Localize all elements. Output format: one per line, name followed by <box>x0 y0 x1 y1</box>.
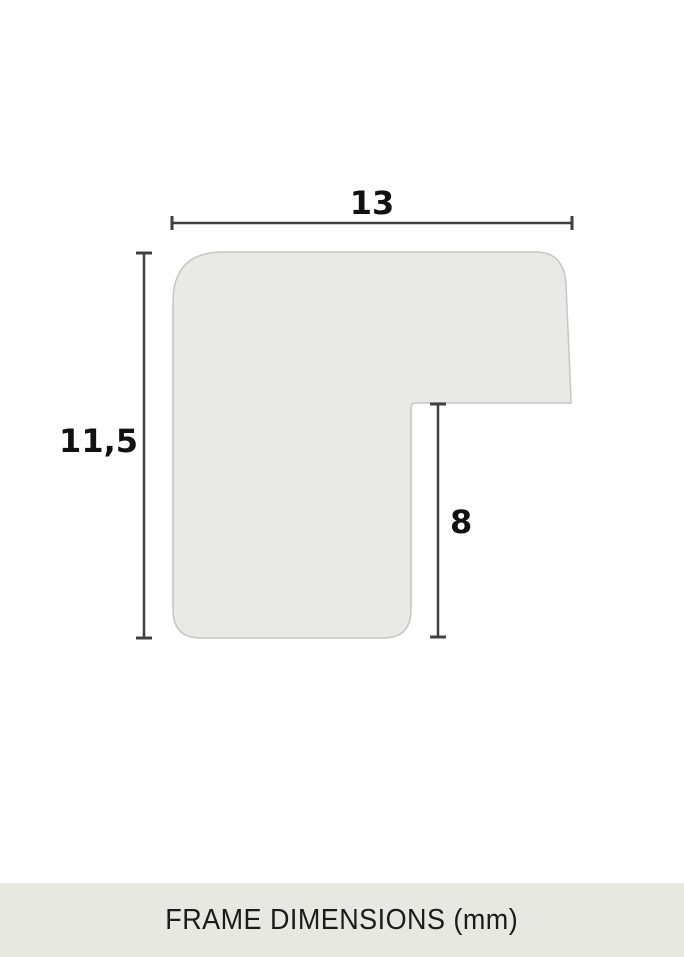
dimension-rabbet-depth <box>430 404 446 637</box>
footer-caption-bar: FRAME DIMENSIONS (mm) <box>0 883 684 957</box>
footer-title: FRAME DIMENSIONS (mm) <box>166 904 519 937</box>
frame-profile-shape <box>173 252 571 638</box>
frame-dimensions-page: 13 11,5 8 FRAME DIMENSIONS (mm) <box>0 0 684 957</box>
dimension-width-label: 13 <box>350 184 395 222</box>
dimension-height <box>136 253 152 638</box>
dimension-height-label: 11,5 <box>59 422 138 460</box>
frame-profile-diagram: 13 11,5 8 <box>0 0 684 883</box>
dimension-rabbet-label: 8 <box>450 503 472 541</box>
